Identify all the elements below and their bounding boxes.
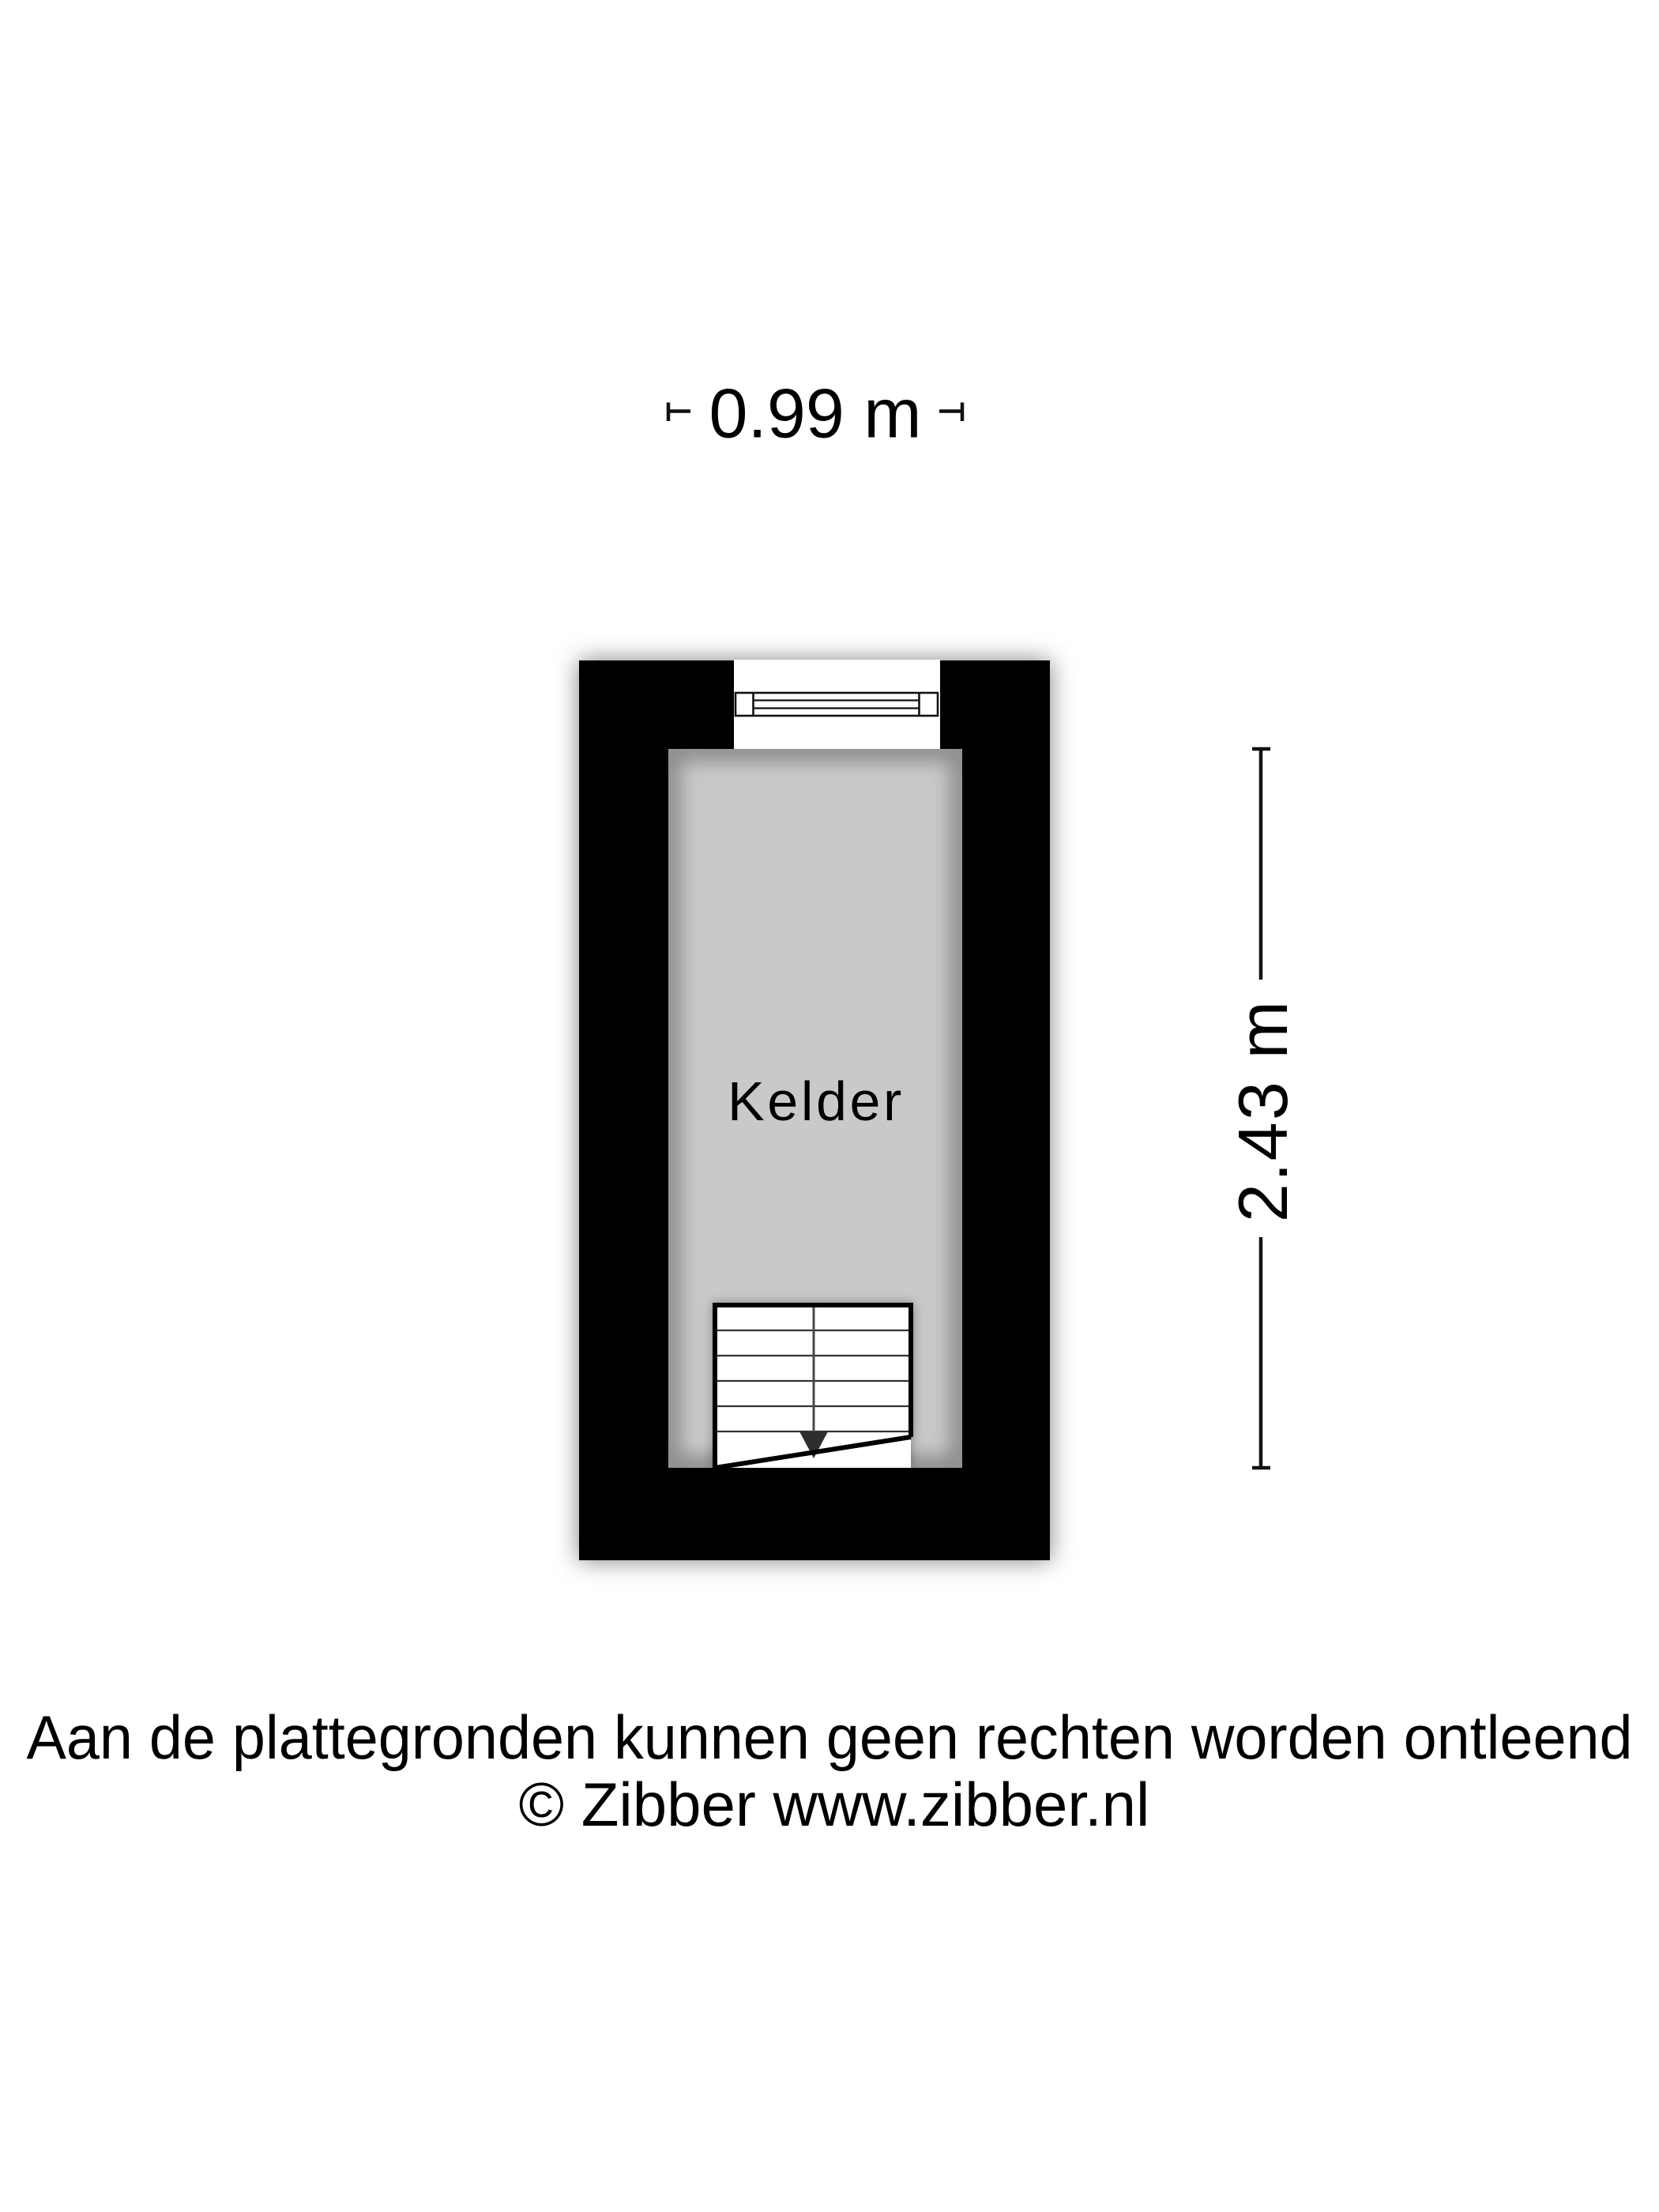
svg-text:© Zibber www.zibber.nl: © Zibber www.zibber.nl xyxy=(519,1770,1150,1839)
svg-text:0.99 m: 0.99 m xyxy=(709,374,921,453)
svg-text:Kelder: Kelder xyxy=(728,1070,905,1132)
svg-text:2.43 m: 2.43 m xyxy=(1224,999,1302,1222)
svg-text:Aan de plattegronden kunnen ge: Aan de plattegronden kunnen geen rechten… xyxy=(27,1702,1633,1772)
